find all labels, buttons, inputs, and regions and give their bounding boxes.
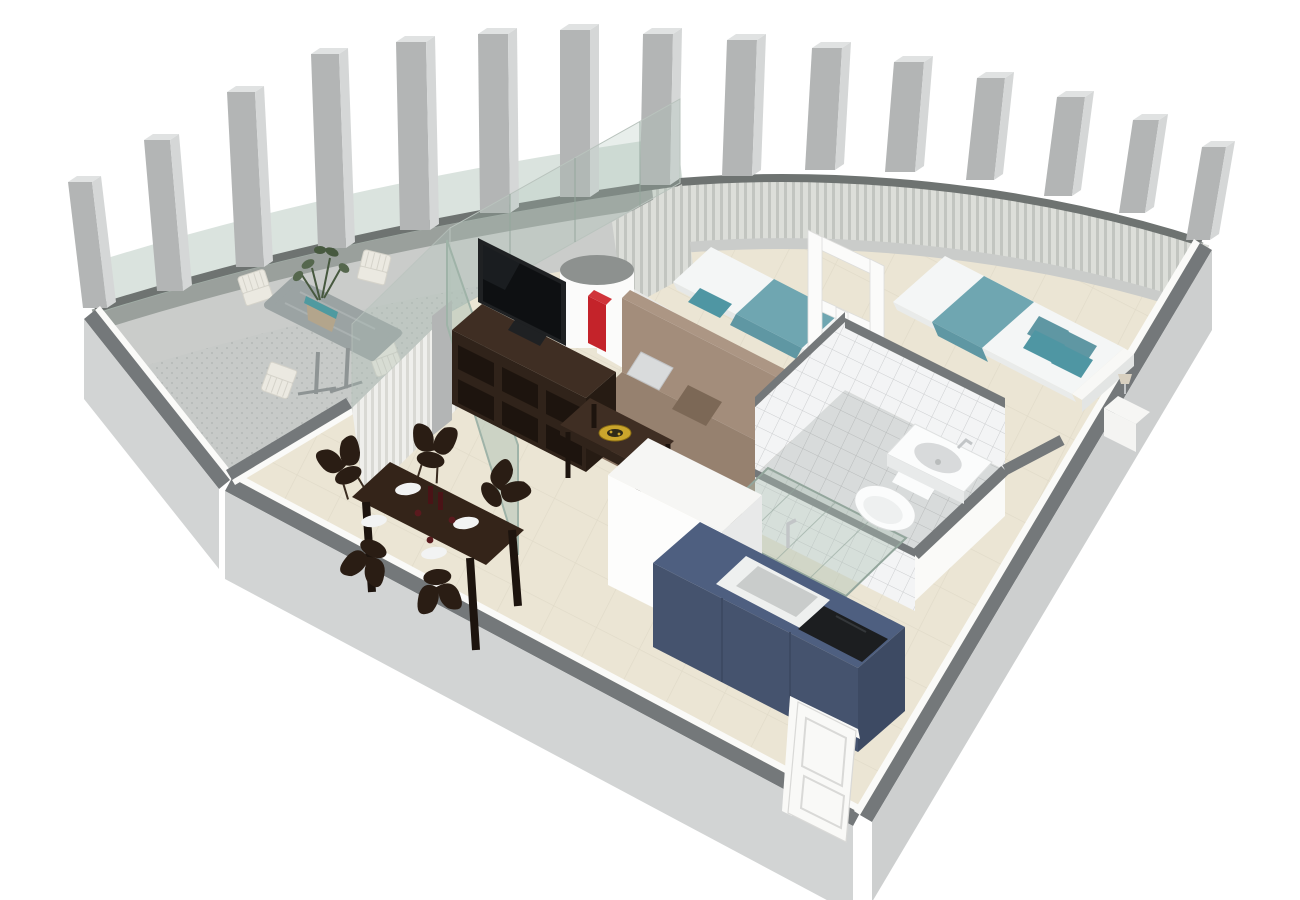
apartment-3d-scene [0,0,1300,900]
column [1119,114,1168,213]
column [966,72,1014,180]
wine-glass [415,510,422,517]
decorative-plate [599,425,631,441]
floor-plan-render [0,0,1300,900]
column [1044,91,1094,196]
column [885,56,933,172]
column [722,34,766,176]
column [311,48,355,248]
wine-glass [449,517,456,524]
round-column-top [560,255,634,285]
column [1186,141,1235,240]
wine-bottle [438,492,443,510]
column [68,176,116,308]
column [396,36,439,230]
wine-bottle [428,486,433,504]
column [478,28,519,213]
wine-glass [427,537,434,544]
column [805,42,851,170]
